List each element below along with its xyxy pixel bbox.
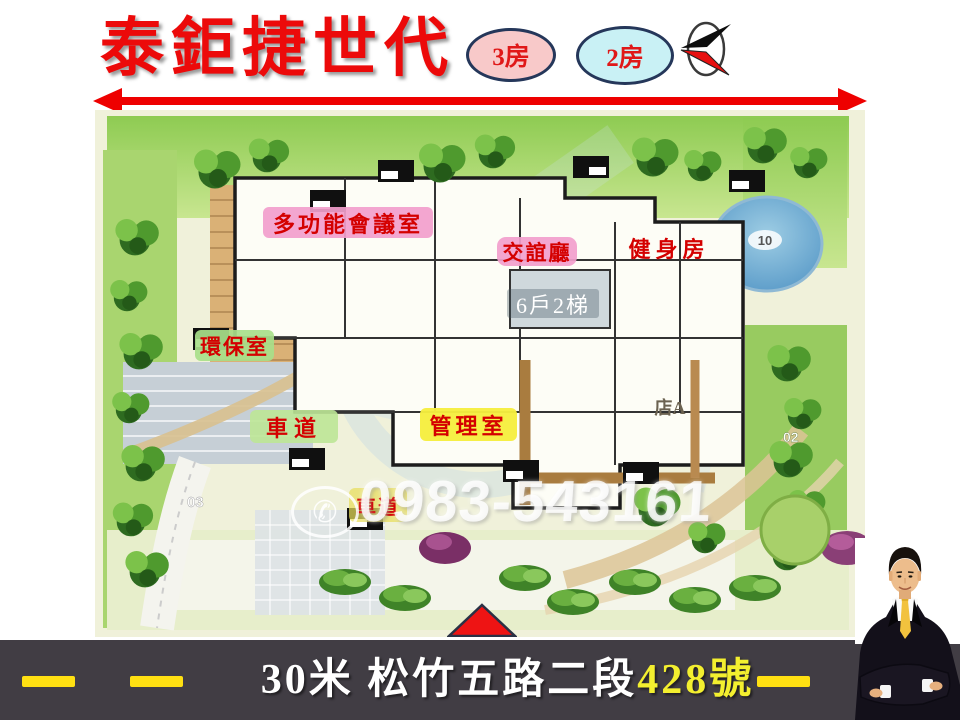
page-title: 泰鉅捷世代 <box>100 6 480 98</box>
phone-icon: ✆ <box>291 486 359 538</box>
label-lounge-text: 交誼廳 <box>503 237 572 267</box>
pool-number: 10 <box>758 233 772 248</box>
label-lounge: 交誼廳 <box>497 237 577 266</box>
label-meeting-room: 多功能會議室 <box>263 207 433 238</box>
phone-watermark: ✆ 0983-543161 <box>283 468 723 552</box>
road-dash <box>22 676 75 687</box>
badge-2-room-label: 2房 <box>606 38 644 74</box>
badge-3-room-label: 3房 <box>492 37 530 73</box>
north-compass-icon <box>678 18 736 80</box>
label-gym-text: 健身房 <box>628 232 709 264</box>
slide: 泰鉅捷世代 3房 2房 <box>0 0 960 720</box>
site-plan: 10 <box>95 110 865 637</box>
lot-number-02: 02 <box>783 429 799 445</box>
label-shop-a-text: 店A <box>655 394 686 420</box>
address-number: 428號 <box>637 657 754 703</box>
footer-road-bar: 30米 松竹五路二段428號 <box>0 640 960 720</box>
badge-2-room: 2房 <box>576 26 674 85</box>
label-management-room: 管理室 <box>420 408 517 441</box>
label-management-room-text: 管理室 <box>429 409 507 441</box>
label-meeting-room-text: 多功能會議室 <box>273 207 423 239</box>
label-shop-a: 店A <box>648 396 692 418</box>
address-road: 30米 松竹五路二段 <box>261 657 638 703</box>
label-recycle-room: 環保室 <box>195 330 274 361</box>
location-triangle <box>447 603 517 637</box>
lot-number-03: 03 <box>187 494 204 511</box>
address-text: 30米 松竹五路二段428號 <box>235 650 780 710</box>
badge-3-room: 3房 <box>466 28 556 82</box>
label-driveway-upper: 車道 <box>250 410 338 443</box>
label-recycle-room-text: 環保室 <box>200 331 269 361</box>
label-gym: 健身房 <box>627 234 711 262</box>
phone-number: 0983-543161 <box>357 468 715 535</box>
label-unit-info-text: 6戶2梯 <box>516 288 590 320</box>
road-dash <box>130 676 183 687</box>
site-plan-art: 10 <box>95 110 865 637</box>
phone-icon-glyph: ✆ <box>312 495 337 530</box>
label-driveway-upper-text: 車道 <box>266 411 322 443</box>
label-unit-info: 6戶2梯 <box>507 289 599 318</box>
realtor-photo <box>828 535 960 720</box>
